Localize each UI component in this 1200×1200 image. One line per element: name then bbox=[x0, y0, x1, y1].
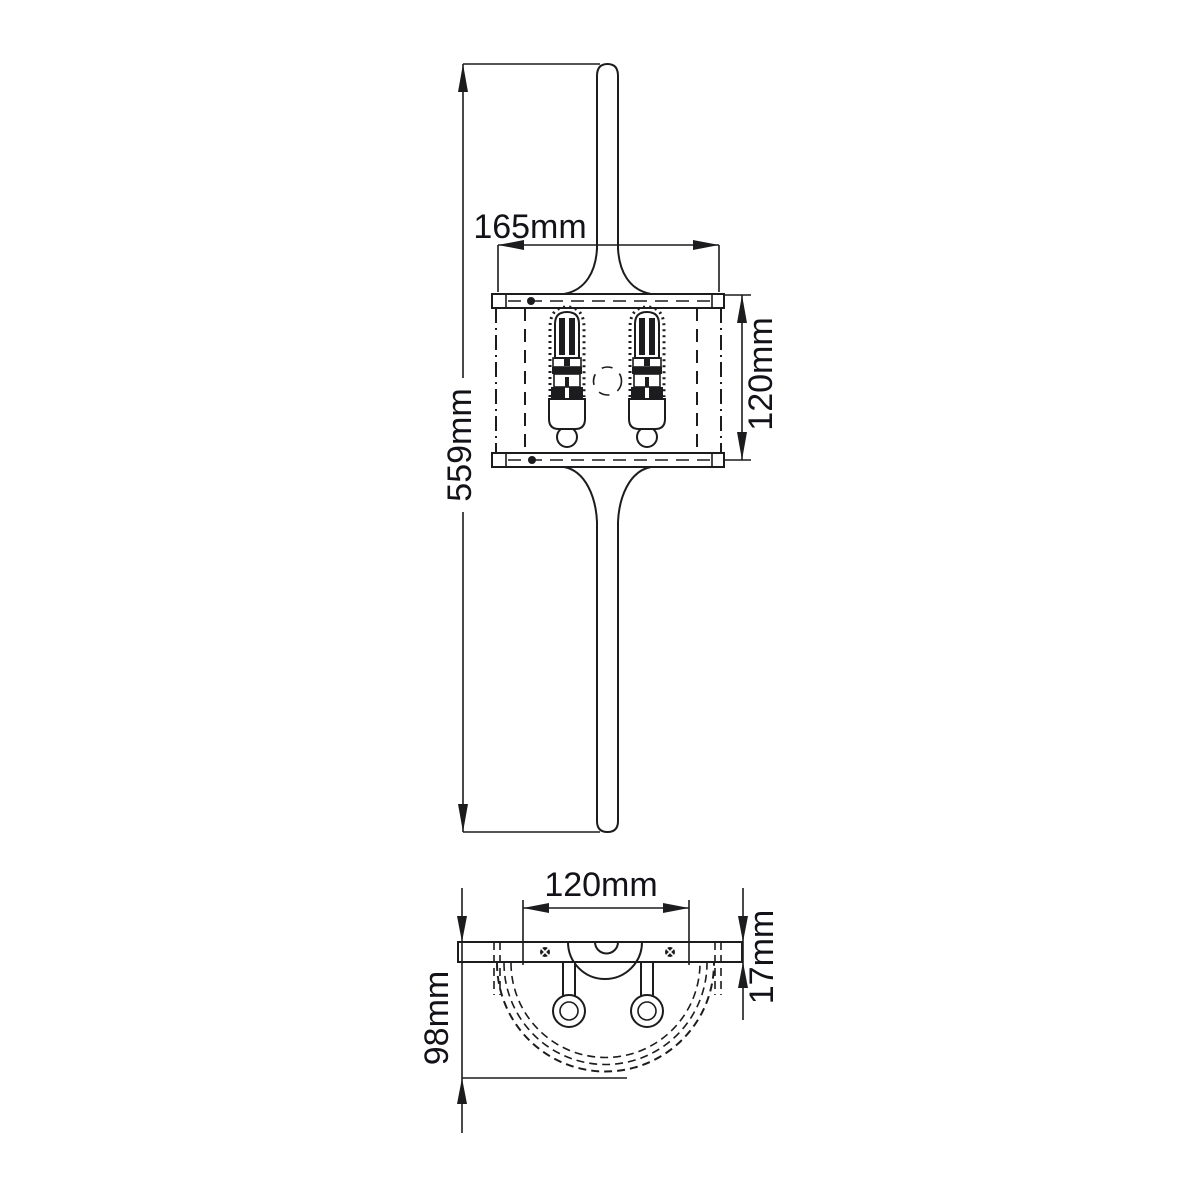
stem-bottom-flare-right bbox=[618, 467, 651, 522]
front-elevation-view bbox=[492, 64, 724, 832]
plan-shade-wall-right bbox=[715, 942, 721, 995]
dim-front-total-height: 559mm bbox=[441, 64, 600, 832]
shade-top-rim bbox=[492, 294, 724, 308]
backplate-lower-stem bbox=[597, 522, 618, 832]
dim-front-width-label: 165mm bbox=[473, 208, 586, 246]
stem-top-flare-left bbox=[564, 248, 597, 294]
dim-front-shade-height: 120mm bbox=[725, 295, 780, 460]
front-view-dimensions: 165mm 559mm 120mm bbox=[441, 64, 780, 832]
plan-shade-inner-arc bbox=[511, 963, 700, 1057]
plan-left-lampholder-stem bbox=[563, 962, 575, 998]
dim-plan-fixing-width-label: 120mm bbox=[544, 866, 657, 904]
centre-mount-hole bbox=[594, 367, 622, 395]
plan-left-screw-icon bbox=[540, 947, 550, 957]
plan-view-dimensions: 120mm 17mm 98mm bbox=[418, 866, 781, 1133]
dim-plan-total-depth-label: 98mm bbox=[418, 971, 456, 1065]
dim-front-shade-height-label: 120mm bbox=[742, 317, 780, 430]
backplate-upper-stem bbox=[597, 64, 618, 250]
dim-plan-plate-depth: 17mm bbox=[738, 888, 781, 1020]
dim-front-total-height-label: 559mm bbox=[441, 388, 479, 501]
plan-right-lampholder-ring bbox=[631, 995, 663, 1027]
plan-cable-notch bbox=[595, 942, 618, 954]
left-lamp-g9-bulb bbox=[549, 307, 585, 447]
dim-plan-plate-depth-label: 17mm bbox=[743, 910, 781, 1004]
plan-right-screw-icon bbox=[665, 947, 675, 957]
technical-drawing: 165mm 559mm 120mm bbox=[0, 0, 1200, 1200]
stem-top-flare-right bbox=[618, 248, 651, 294]
plan-left-lampholder-ring bbox=[553, 995, 585, 1027]
stem-bottom-flare-left bbox=[564, 467, 597, 522]
drawing-canvas: 165mm 559mm 120mm bbox=[0, 0, 1200, 1200]
right-lamp-g9-bulb bbox=[629, 307, 665, 447]
top-rim-screw-icon bbox=[527, 297, 535, 305]
plan-right-lampholder-stem bbox=[641, 962, 653, 998]
shade-bottom-rim bbox=[492, 453, 724, 467]
plan-centre-boss bbox=[568, 942, 642, 979]
plan-view bbox=[458, 942, 742, 1072]
bottom-rim-screw-icon bbox=[528, 456, 536, 464]
